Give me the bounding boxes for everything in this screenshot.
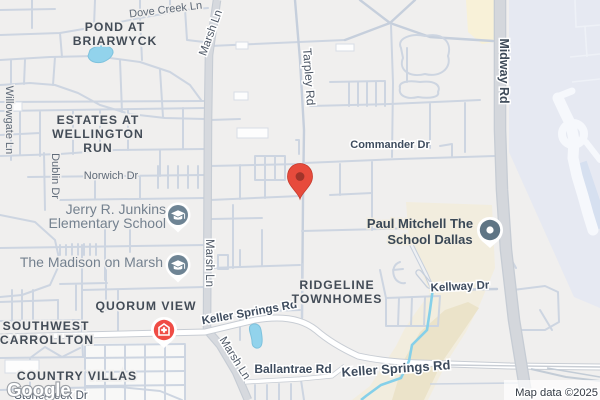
svg-text:BRIARWYCK: BRIARWYCK bbox=[73, 34, 158, 48]
svg-text:SOUTHWEST: SOUTHWEST bbox=[3, 319, 90, 333]
svg-text:Norwich Dr: Norwich Dr bbox=[84, 170, 139, 182]
svg-text:Ballantrae Rd: Ballantrae Rd bbox=[254, 362, 331, 376]
svg-text:POND AT: POND AT bbox=[85, 20, 146, 34]
svg-text:Commander Dr: Commander Dr bbox=[350, 139, 430, 151]
svg-text:WELLINGTON: WELLINGTON bbox=[52, 127, 144, 141]
svg-text:QUORUM VIEW: QUORUM VIEW bbox=[95, 299, 196, 313]
svg-text:RUN: RUN bbox=[83, 141, 112, 155]
svg-text:Midway Rd: Midway Rd bbox=[497, 38, 511, 103]
svg-text:Map data ©2025: Map data ©2025 bbox=[515, 387, 598, 399]
svg-text:School Dallas: School Dallas bbox=[387, 232, 472, 247]
svg-text:RIDGELINE: RIDGELINE bbox=[299, 278, 374, 292]
svg-text:Marsh Ln: Marsh Ln bbox=[203, 239, 215, 287]
svg-text:Elementary School: Elementary School bbox=[48, 215, 166, 231]
svg-text:TOWNHOMES: TOWNHOMES bbox=[292, 292, 383, 306]
svg-text:Dublin Dr: Dublin Dr bbox=[49, 153, 61, 199]
svg-text:The Madison on Marsh: The Madison on Marsh bbox=[20, 254, 163, 270]
svg-text:ESTATES AT: ESTATES AT bbox=[57, 113, 140, 127]
svg-text:Paul Mitchell The: Paul Mitchell The bbox=[367, 216, 473, 231]
svg-text:Willowgate Ln: Willowgate Ln bbox=[3, 86, 15, 154]
svg-text:CARROLLTON: CARROLLTON bbox=[0, 333, 94, 347]
svg-text:Google: Google bbox=[7, 379, 71, 400]
